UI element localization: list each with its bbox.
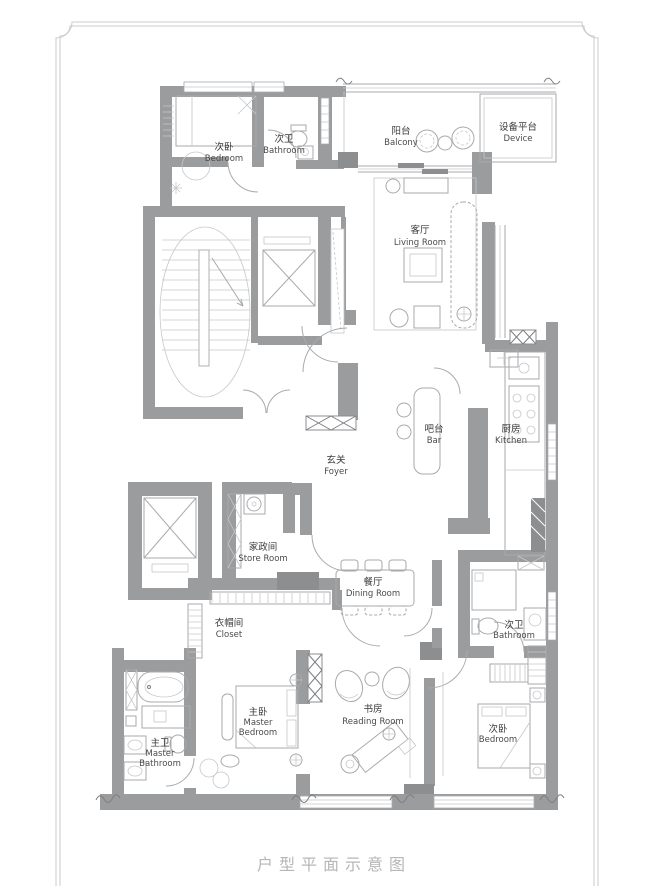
caption: 户型平面示意图 <box>257 855 411 874</box>
room-label-bathroom-east-en: Bathroom <box>493 631 535 641</box>
shaft-southwest <box>144 498 196 572</box>
room-label-master-bath-en2: Bathroom <box>139 759 181 769</box>
kitchen-top-beam <box>510 330 536 344</box>
room-label-reading-en: Reading Room <box>342 717 403 727</box>
kitchen-counter <box>490 350 545 555</box>
room-label-master-bed-zh: 主卧 <box>248 706 268 718</box>
room-label-bathroom-north-en: Bathroom <box>263 146 305 156</box>
room-label-device-zh: 设备平台 <box>499 121 537 133</box>
room-label-dining-en: Dining Room <box>346 589 400 599</box>
room-label-balcony-en: Balcony <box>384 138 418 148</box>
room-label-foyer-en: Foyer <box>324 467 348 477</box>
room-label-reading-zh: 书房 <box>363 703 382 715</box>
vent-shaft <box>331 229 344 333</box>
room-label-bedroom-north-en: Bedroom <box>205 154 243 164</box>
room-label-master-bath-zh: 主卫 <box>150 737 170 749</box>
room-label-bar-zh: 吧台 <box>424 423 443 435</box>
room-label-bar-en: Bar <box>427 436 442 446</box>
room-label-master-bed-en1: Master <box>243 718 273 728</box>
room-label-master-bath-en1: Master <box>145 749 175 759</box>
room-label-store-en: Store Room <box>238 554 287 564</box>
closet-wardrobe <box>188 592 330 658</box>
floor-plan: 次卧 Bedroom 次卫 Bathroom 阳台 Balcony 设备平台 D… <box>0 0 660 886</box>
room-label-device-en: Device <box>503 134 532 144</box>
room-label-living-en: Living Room <box>394 238 446 248</box>
balcony-chairs <box>416 127 474 152</box>
room-label-master-bed-en2: Bedroom <box>239 728 277 738</box>
foyer-beam <box>306 416 356 430</box>
room-label-bedroom-north-zh: 次卧 <box>214 141 234 153</box>
room-label-foyer-zh: 玄关 <box>326 454 346 466</box>
room-label-bedroom-se-en: Bedroom <box>479 735 517 745</box>
room-label-balcony-zh: 阳台 <box>391 125 410 137</box>
room-label-dining-zh: 餐厅 <box>363 576 383 588</box>
bedroom-southeast-furniture <box>443 646 546 778</box>
room-label-bedroom-se-zh: 次卧 <box>488 723 508 735</box>
bed-north <box>163 96 256 194</box>
living-room-furniture <box>374 178 477 330</box>
room-label-bathroom-north-zh: 次卫 <box>274 133 294 145</box>
room-label-store-zh: 家政间 <box>249 541 278 553</box>
room-label-kitchen-zh: 厨房 <box>501 423 520 435</box>
room-label-closet-en: Closet <box>216 630 243 640</box>
room-label-bathroom-east-zh: 次卫 <box>504 619 524 631</box>
room-label-closet-zh: 衣帽间 <box>215 617 244 629</box>
room-label-kitchen-en: Kitchen <box>495 436 527 446</box>
elevator <box>259 227 317 335</box>
stairwell <box>160 227 250 397</box>
room-label-living-zh: 客厅 <box>410 224 430 236</box>
sliding-door <box>358 163 472 174</box>
walls <box>100 86 558 810</box>
